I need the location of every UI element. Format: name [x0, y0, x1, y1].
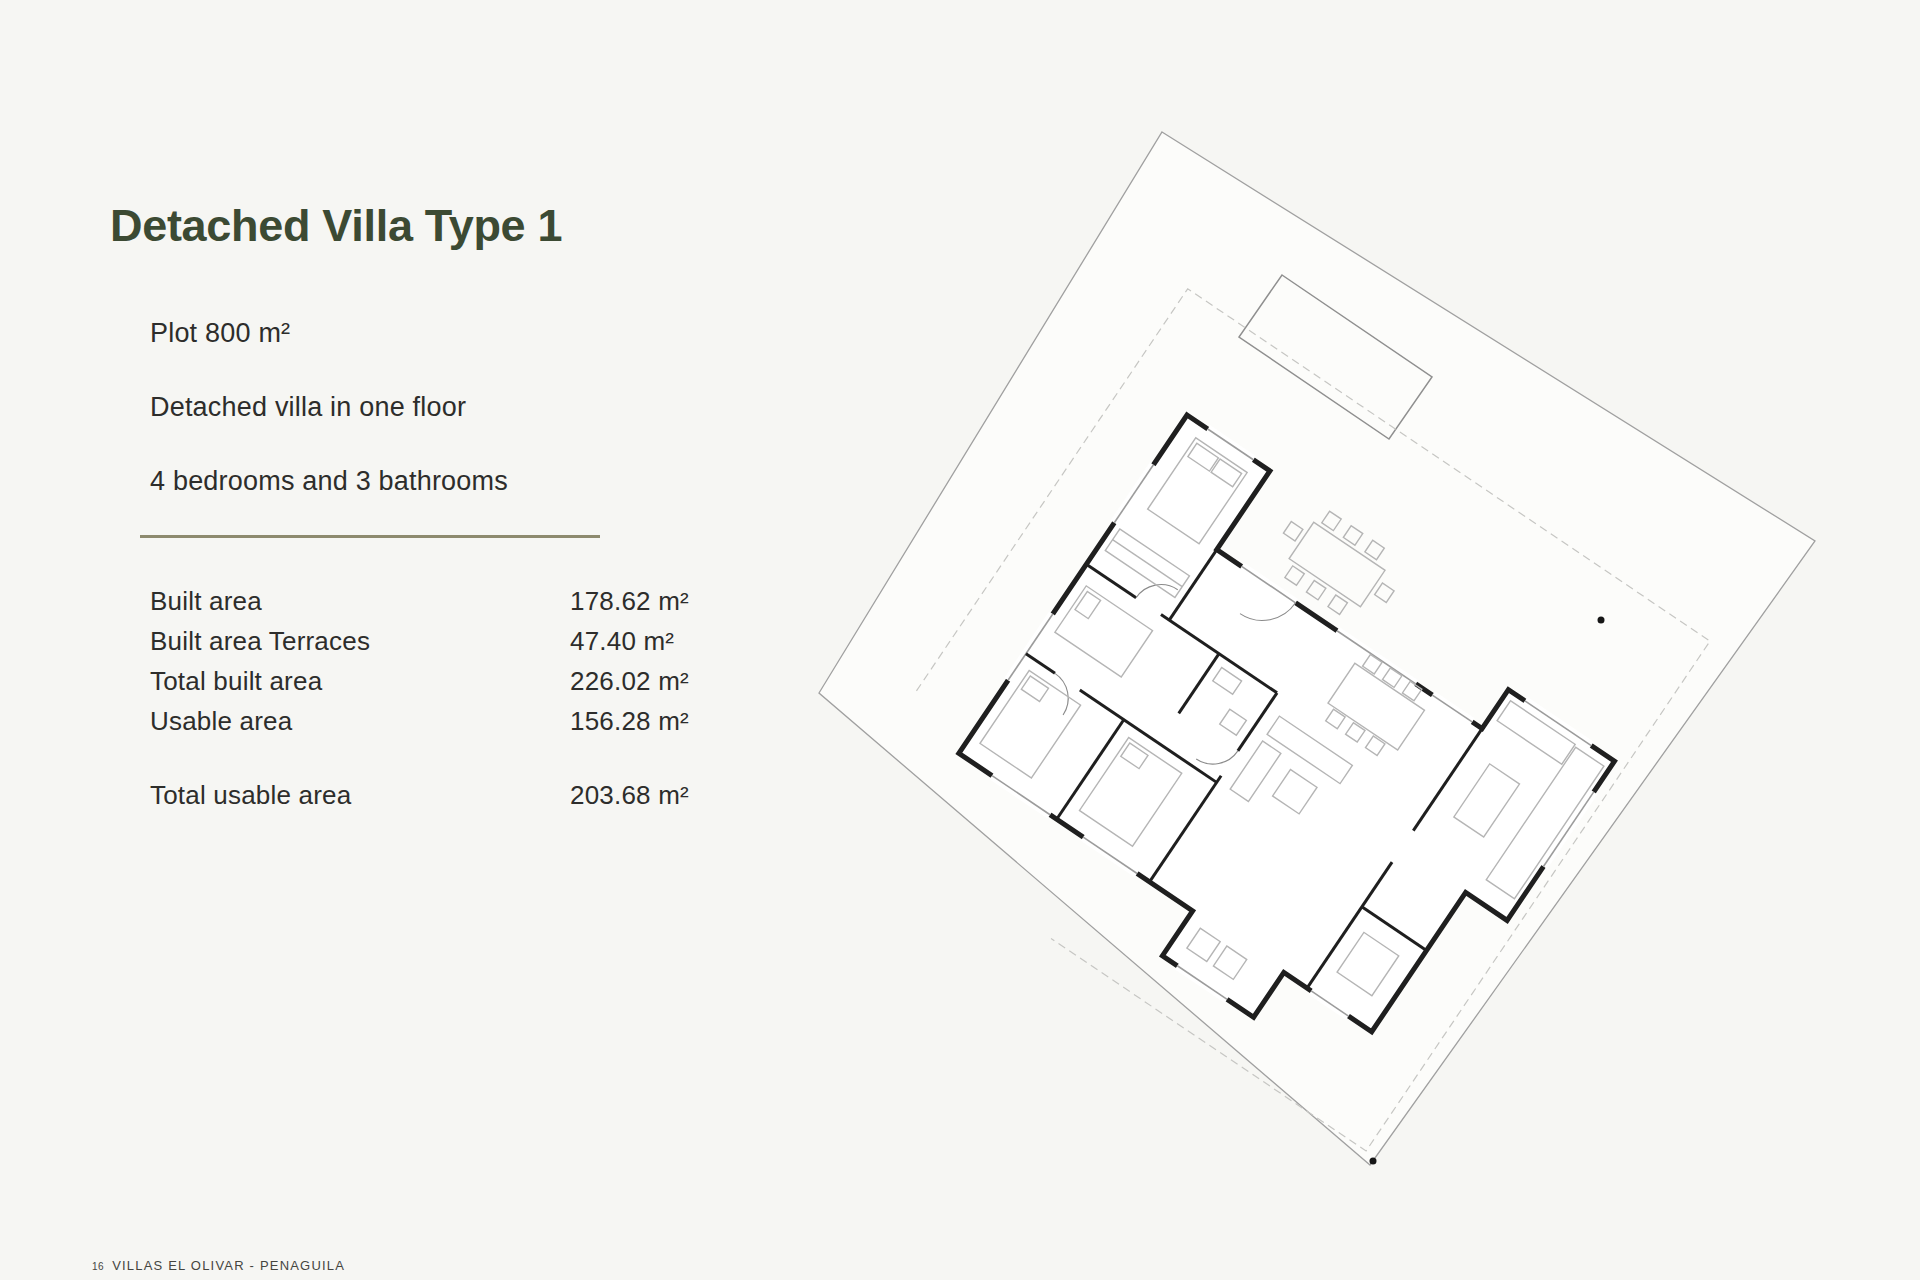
floorplan-svg: [0, 0, 1920, 1280]
marker-dot: [1598, 617, 1605, 624]
marker-dot: [1370, 1158, 1377, 1165]
page-number: 16: [92, 1261, 104, 1272]
footer: 16 VILLAS EL OLIVAR - PENAGUILA: [92, 1258, 345, 1273]
brochure-page: Detached Villa Type 1 Plot 800 m² Detach…: [0, 0, 1920, 1280]
footer-text: VILLAS EL OLIVAR - PENAGUILA: [112, 1258, 345, 1273]
site-plan: [0, 0, 1920, 1280]
